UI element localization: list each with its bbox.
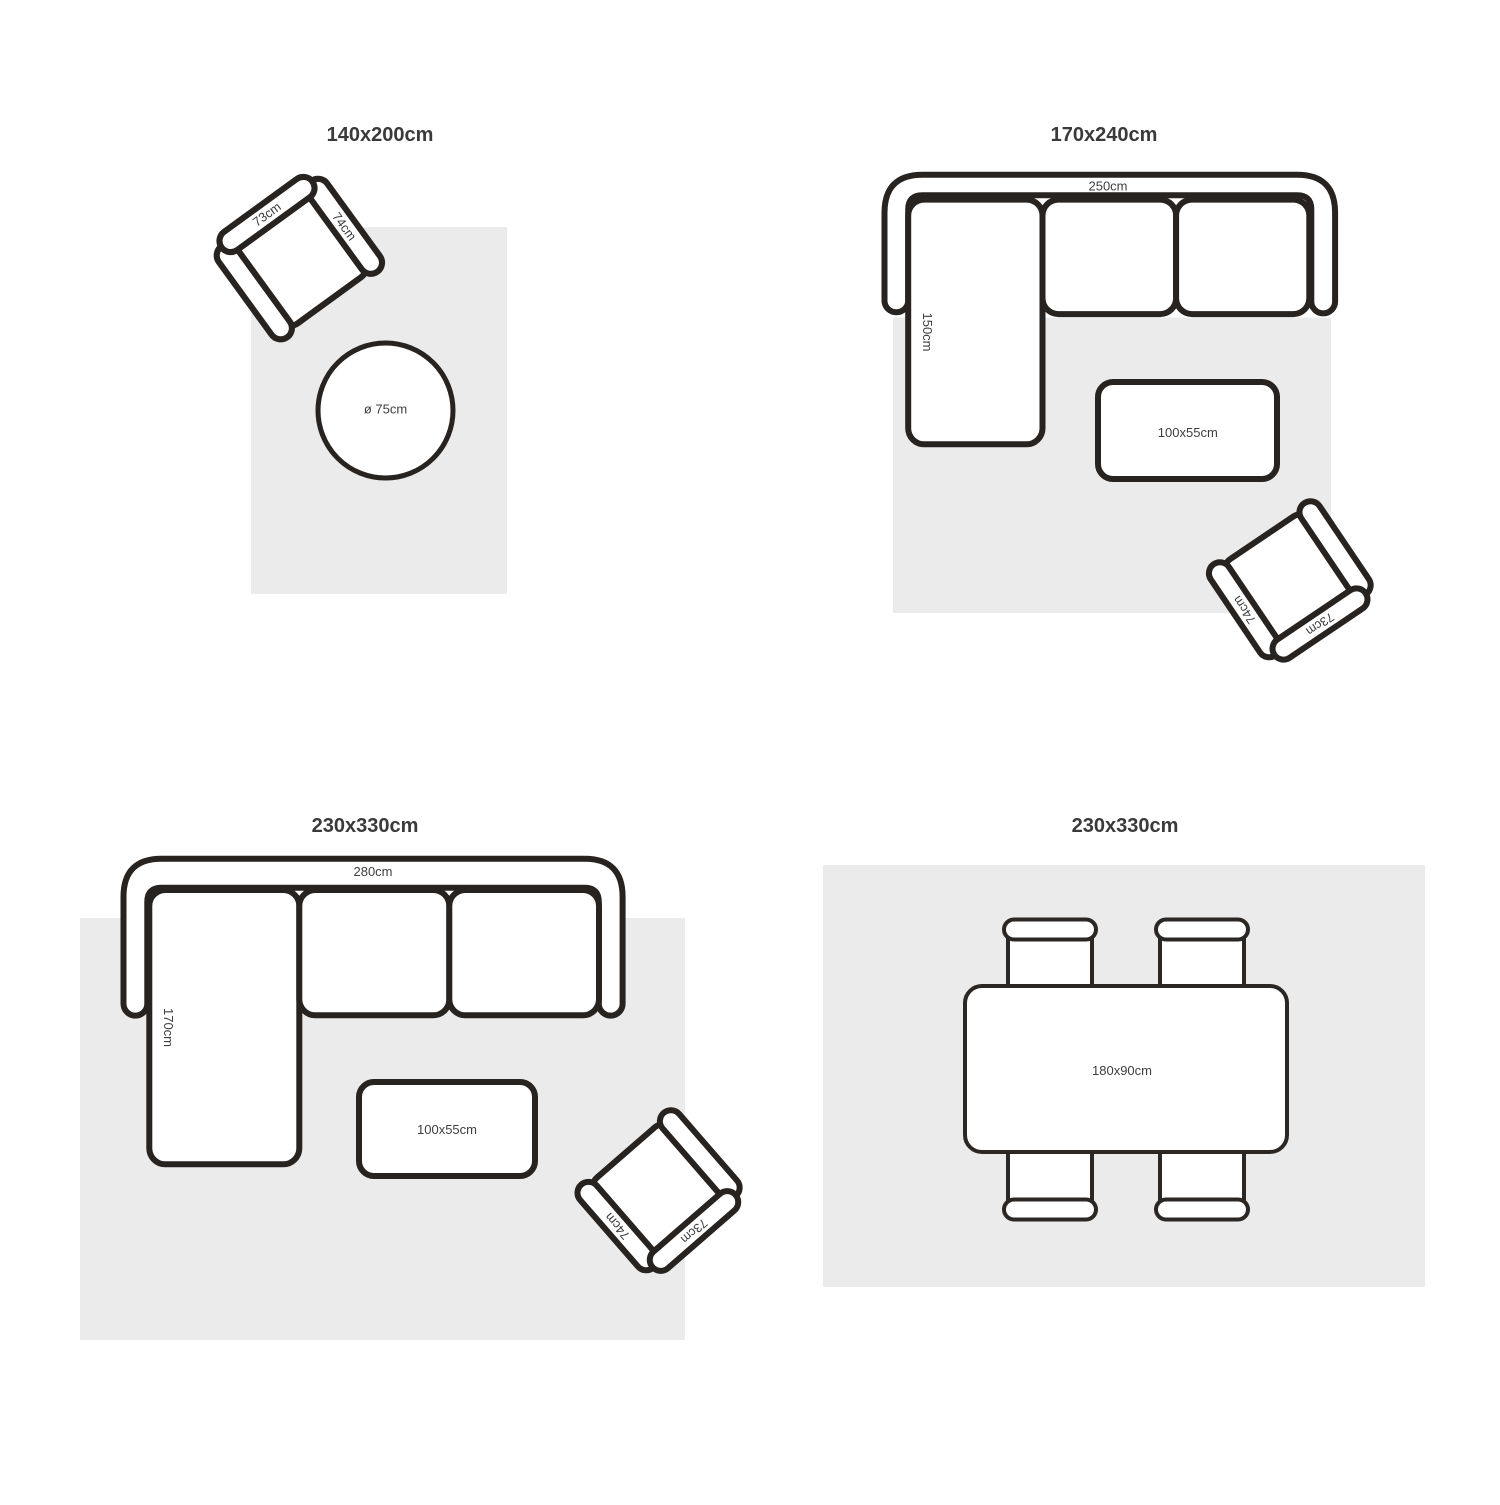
svg-text:140x200cm: 140x200cm: [327, 124, 434, 146]
svg-text:180x90cm: 180x90cm: [1092, 1063, 1152, 1078]
svg-text:250cm: 250cm: [1088, 179, 1127, 194]
svg-text:170x240cm: 170x240cm: [1051, 124, 1158, 146]
svg-text:230x330cm: 230x330cm: [312, 815, 419, 837]
svg-text:170cm: 170cm: [161, 1008, 176, 1047]
svg-text:150cm: 150cm: [920, 312, 935, 351]
svg-text:230x330cm: 230x330cm: [1072, 815, 1179, 837]
svg-text:100x55cm: 100x55cm: [417, 1122, 477, 1137]
svg-text:ø 75cm: ø 75cm: [364, 402, 407, 417]
svg-text:100x55cm: 100x55cm: [1158, 425, 1218, 440]
svg-text:280cm: 280cm: [353, 864, 392, 879]
